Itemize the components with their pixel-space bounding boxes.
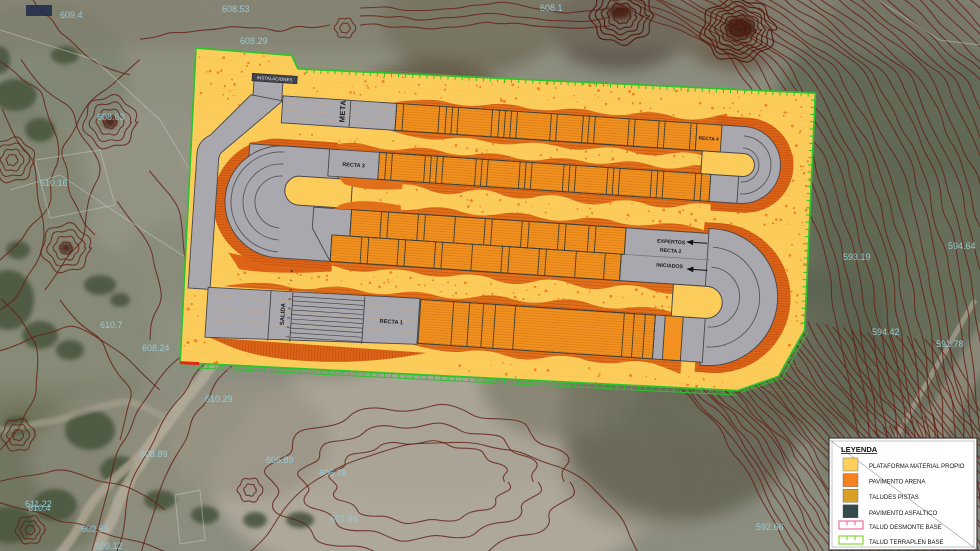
- svg-text:608.89: 608.89: [140, 449, 168, 459]
- svg-text:611.22: 611.22: [25, 499, 52, 509]
- svg-text:592.66: 592.66: [756, 522, 784, 532]
- svg-text:608.1: 608.1: [540, 3, 563, 13]
- svg-text:TALUD DESMONTE BASE: TALUD DESMONTE BASE: [869, 525, 942, 531]
- svg-text:PAVIMENTO ARENA: PAVIMENTO ARENA: [869, 480, 925, 486]
- svg-text:594.42: 594.42: [872, 327, 900, 337]
- svg-text:608.53: 608.53: [222, 4, 250, 14]
- svg-text:609.12: 609.12: [95, 541, 123, 551]
- svg-text:609.63: 609.63: [81, 524, 109, 534]
- svg-text:609.4: 609.4: [60, 10, 83, 20]
- svg-text:594.64: 594.64: [948, 241, 976, 251]
- svg-text:607.96: 607.96: [330, 514, 358, 524]
- svg-text:610.7: 610.7: [100, 320, 123, 330]
- svg-text:PAVIMENTO ASFALTICO: PAVIMENTO ASFALTICO: [869, 511, 938, 517]
- svg-text:610.29: 610.29: [205, 394, 233, 404]
- svg-text:TALUD TERRAPLEN BASE: TALUD TERRAPLEN BASE: [869, 540, 943, 546]
- svg-text:610.16: 610.16: [40, 178, 68, 188]
- svg-text:608.63: 608.63: [97, 112, 125, 122]
- svg-text:TALUDES PISTAS: TALUDES PISTAS: [869, 495, 919, 501]
- svg-text:PLATAFORMA MATERIAL PROPIO: PLATAFORMA MATERIAL PROPIO: [869, 464, 965, 470]
- svg-text:608.29: 608.29: [240, 36, 268, 46]
- svg-text:LEYENDA: LEYENDA: [841, 445, 878, 454]
- svg-text:608.24: 608.24: [142, 343, 170, 353]
- svg-text:593.19: 593.19: [843, 252, 871, 262]
- svg-text:META: META: [337, 99, 347, 122]
- svg-text:606.78: 606.78: [319, 468, 347, 478]
- svg-text:606.89: 606.89: [266, 455, 294, 465]
- svg-text:592.78: 592.78: [936, 339, 964, 349]
